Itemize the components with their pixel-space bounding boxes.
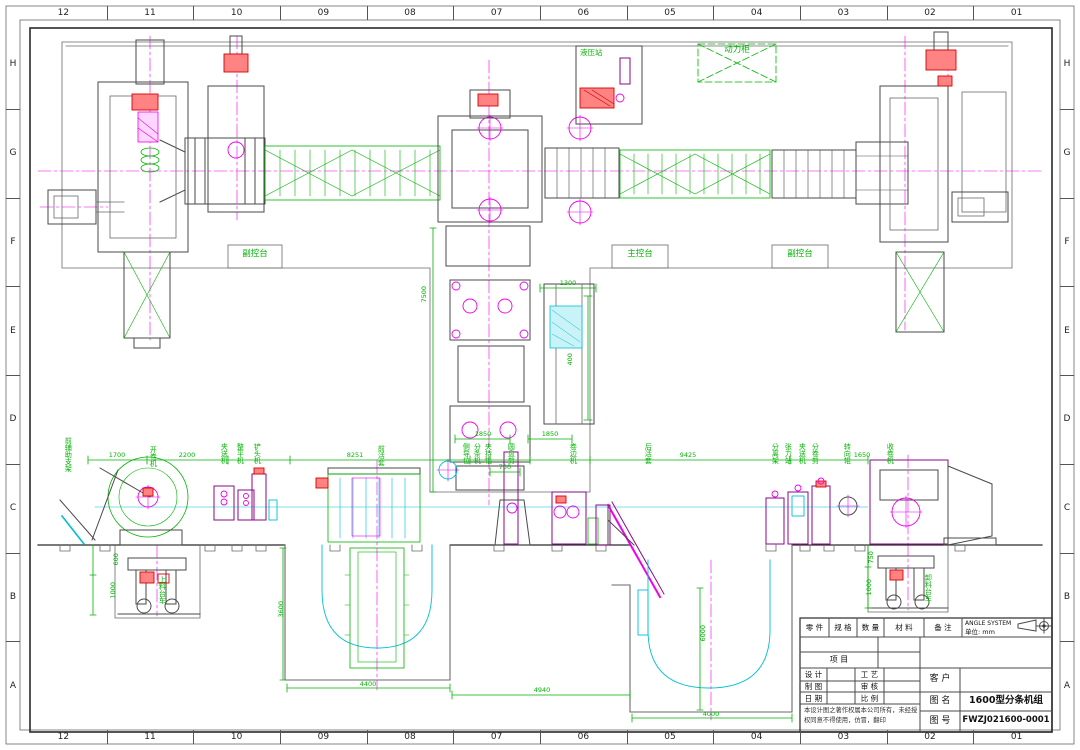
grid-tick xyxy=(193,6,194,20)
grid-ref: E xyxy=(1060,286,1074,375)
grid-ref: G xyxy=(6,109,20,198)
grid-tick xyxy=(6,198,20,199)
tb-copyright-line2: 权同意不得使用，仿冒，翻印 xyxy=(804,718,886,724)
grid-ref: 09 xyxy=(280,730,367,744)
grid-tick xyxy=(6,109,20,110)
title-block-linework xyxy=(0,0,1080,750)
grid-tick xyxy=(280,730,281,744)
grid-tick xyxy=(193,730,194,744)
grid-ref: 11 xyxy=(107,730,194,744)
grid-ref: 03 xyxy=(800,730,887,744)
grid-tick xyxy=(6,375,20,376)
grid-ref: 02 xyxy=(887,6,974,20)
grid-ref: 08 xyxy=(367,730,454,744)
grid-ref: 05 xyxy=(627,6,714,20)
grid-ref: 06 xyxy=(540,730,627,744)
grid-tick xyxy=(1060,464,1074,465)
grid-ref: 01 xyxy=(973,730,1060,744)
tb-review: 审 核 xyxy=(855,683,884,691)
grid-ref: 04 xyxy=(713,6,800,20)
grid-ref: D xyxy=(1060,375,1074,464)
grid-tick xyxy=(1060,641,1074,642)
grid-tick xyxy=(453,730,454,744)
tb-project: 项 目 xyxy=(800,656,878,664)
grid-ref: 04 xyxy=(713,730,800,744)
tb-header-remark: 备 注 xyxy=(924,624,962,632)
grid-ref: 05 xyxy=(627,730,714,744)
grid-ref: G xyxy=(1060,109,1074,198)
grid-tick xyxy=(887,6,888,20)
grid-ref: 03 xyxy=(800,6,887,20)
tb-header-qty: 数 量 xyxy=(857,624,884,632)
grid-ref: B xyxy=(1060,553,1074,642)
cad-drawing-sheet: 液压站 动力柜 副控台 主控台 副控台 7500 1300 400 前辅助支架 … xyxy=(0,0,1080,750)
grid-tick xyxy=(107,730,108,744)
grid-ref: B xyxy=(6,553,20,642)
tb-angle-system: ANGLE SYSTEM xyxy=(965,621,1011,627)
tb-header-spec: 规 格 xyxy=(829,624,857,632)
grid-tick xyxy=(6,464,20,465)
grid-ref: E xyxy=(6,286,20,375)
grid-ref: C xyxy=(6,464,20,553)
grid-tick xyxy=(800,6,801,20)
grid-tick xyxy=(540,730,541,744)
grid-ref: 07 xyxy=(453,730,540,744)
tb-copyright-line1: 本设计图之著作权属本公司所有，未经授 xyxy=(804,708,917,714)
tb-scale: 比 例 xyxy=(855,695,884,703)
grid-ref: 09 xyxy=(280,6,367,20)
grid-tick xyxy=(627,6,628,20)
tb-drawing-no-label: 图 号 xyxy=(920,717,960,726)
grid-tick xyxy=(627,730,628,744)
grid-tick xyxy=(540,6,541,20)
tb-drawing-no: FWZJ021600-0001 xyxy=(960,716,1052,725)
grid-ref: 02 xyxy=(887,730,974,744)
grid-ref: 07 xyxy=(453,6,540,20)
grid-ref: F xyxy=(1060,198,1074,287)
grid-ref: 10 xyxy=(193,730,280,744)
grid-tick xyxy=(453,6,454,20)
grid-ref: 08 xyxy=(367,6,454,20)
grid-tick xyxy=(280,6,281,20)
grid-ref: 01 xyxy=(973,6,1060,20)
grid-tick xyxy=(1060,375,1074,376)
grid-ref: 11 xyxy=(107,6,194,20)
tb-design: 设 计 xyxy=(800,671,827,679)
grid-tick xyxy=(1060,286,1074,287)
grid-ref: 12 xyxy=(20,6,107,20)
grid-ref: 12 xyxy=(20,730,107,744)
grid-tick xyxy=(713,730,714,744)
tb-drawing-name: 1600型分条机组 xyxy=(960,696,1052,706)
grid-tick xyxy=(367,730,368,744)
grid-ref: H xyxy=(1060,20,1074,109)
grid-ref: C xyxy=(1060,464,1074,553)
grid-ref: H xyxy=(6,20,20,109)
grid-ref: F xyxy=(6,198,20,287)
grid-tick xyxy=(887,730,888,744)
grid-ref: 06 xyxy=(540,6,627,20)
tb-process: 工 艺 xyxy=(855,671,884,679)
grid-tick xyxy=(6,641,20,642)
grid-tick xyxy=(1060,198,1074,199)
grid-tick xyxy=(367,6,368,20)
grid-tick xyxy=(800,730,801,744)
tb-header-material: 材 料 xyxy=(884,624,924,632)
grid-ref: 10 xyxy=(193,6,280,20)
grid-tick xyxy=(107,6,108,20)
grid-tick xyxy=(6,553,20,554)
tb-unit: 单位: mm xyxy=(965,629,995,636)
tb-drawing-name-label: 图 名 xyxy=(920,697,960,706)
grid-tick xyxy=(1060,109,1074,110)
grid-ref: D xyxy=(6,375,20,464)
grid-tick xyxy=(973,730,974,744)
tb-header-part: 零 件 xyxy=(800,624,829,632)
tb-draft: 制 图 xyxy=(800,683,827,691)
tb-customer: 客 户 xyxy=(920,675,960,684)
grid-tick xyxy=(713,6,714,20)
grid-ref: A xyxy=(6,641,20,730)
grid-tick xyxy=(1060,553,1074,554)
grid-tick xyxy=(6,286,20,287)
grid-ref: A xyxy=(1060,641,1074,730)
grid-tick xyxy=(973,6,974,20)
tb-date: 日 期 xyxy=(800,695,827,703)
